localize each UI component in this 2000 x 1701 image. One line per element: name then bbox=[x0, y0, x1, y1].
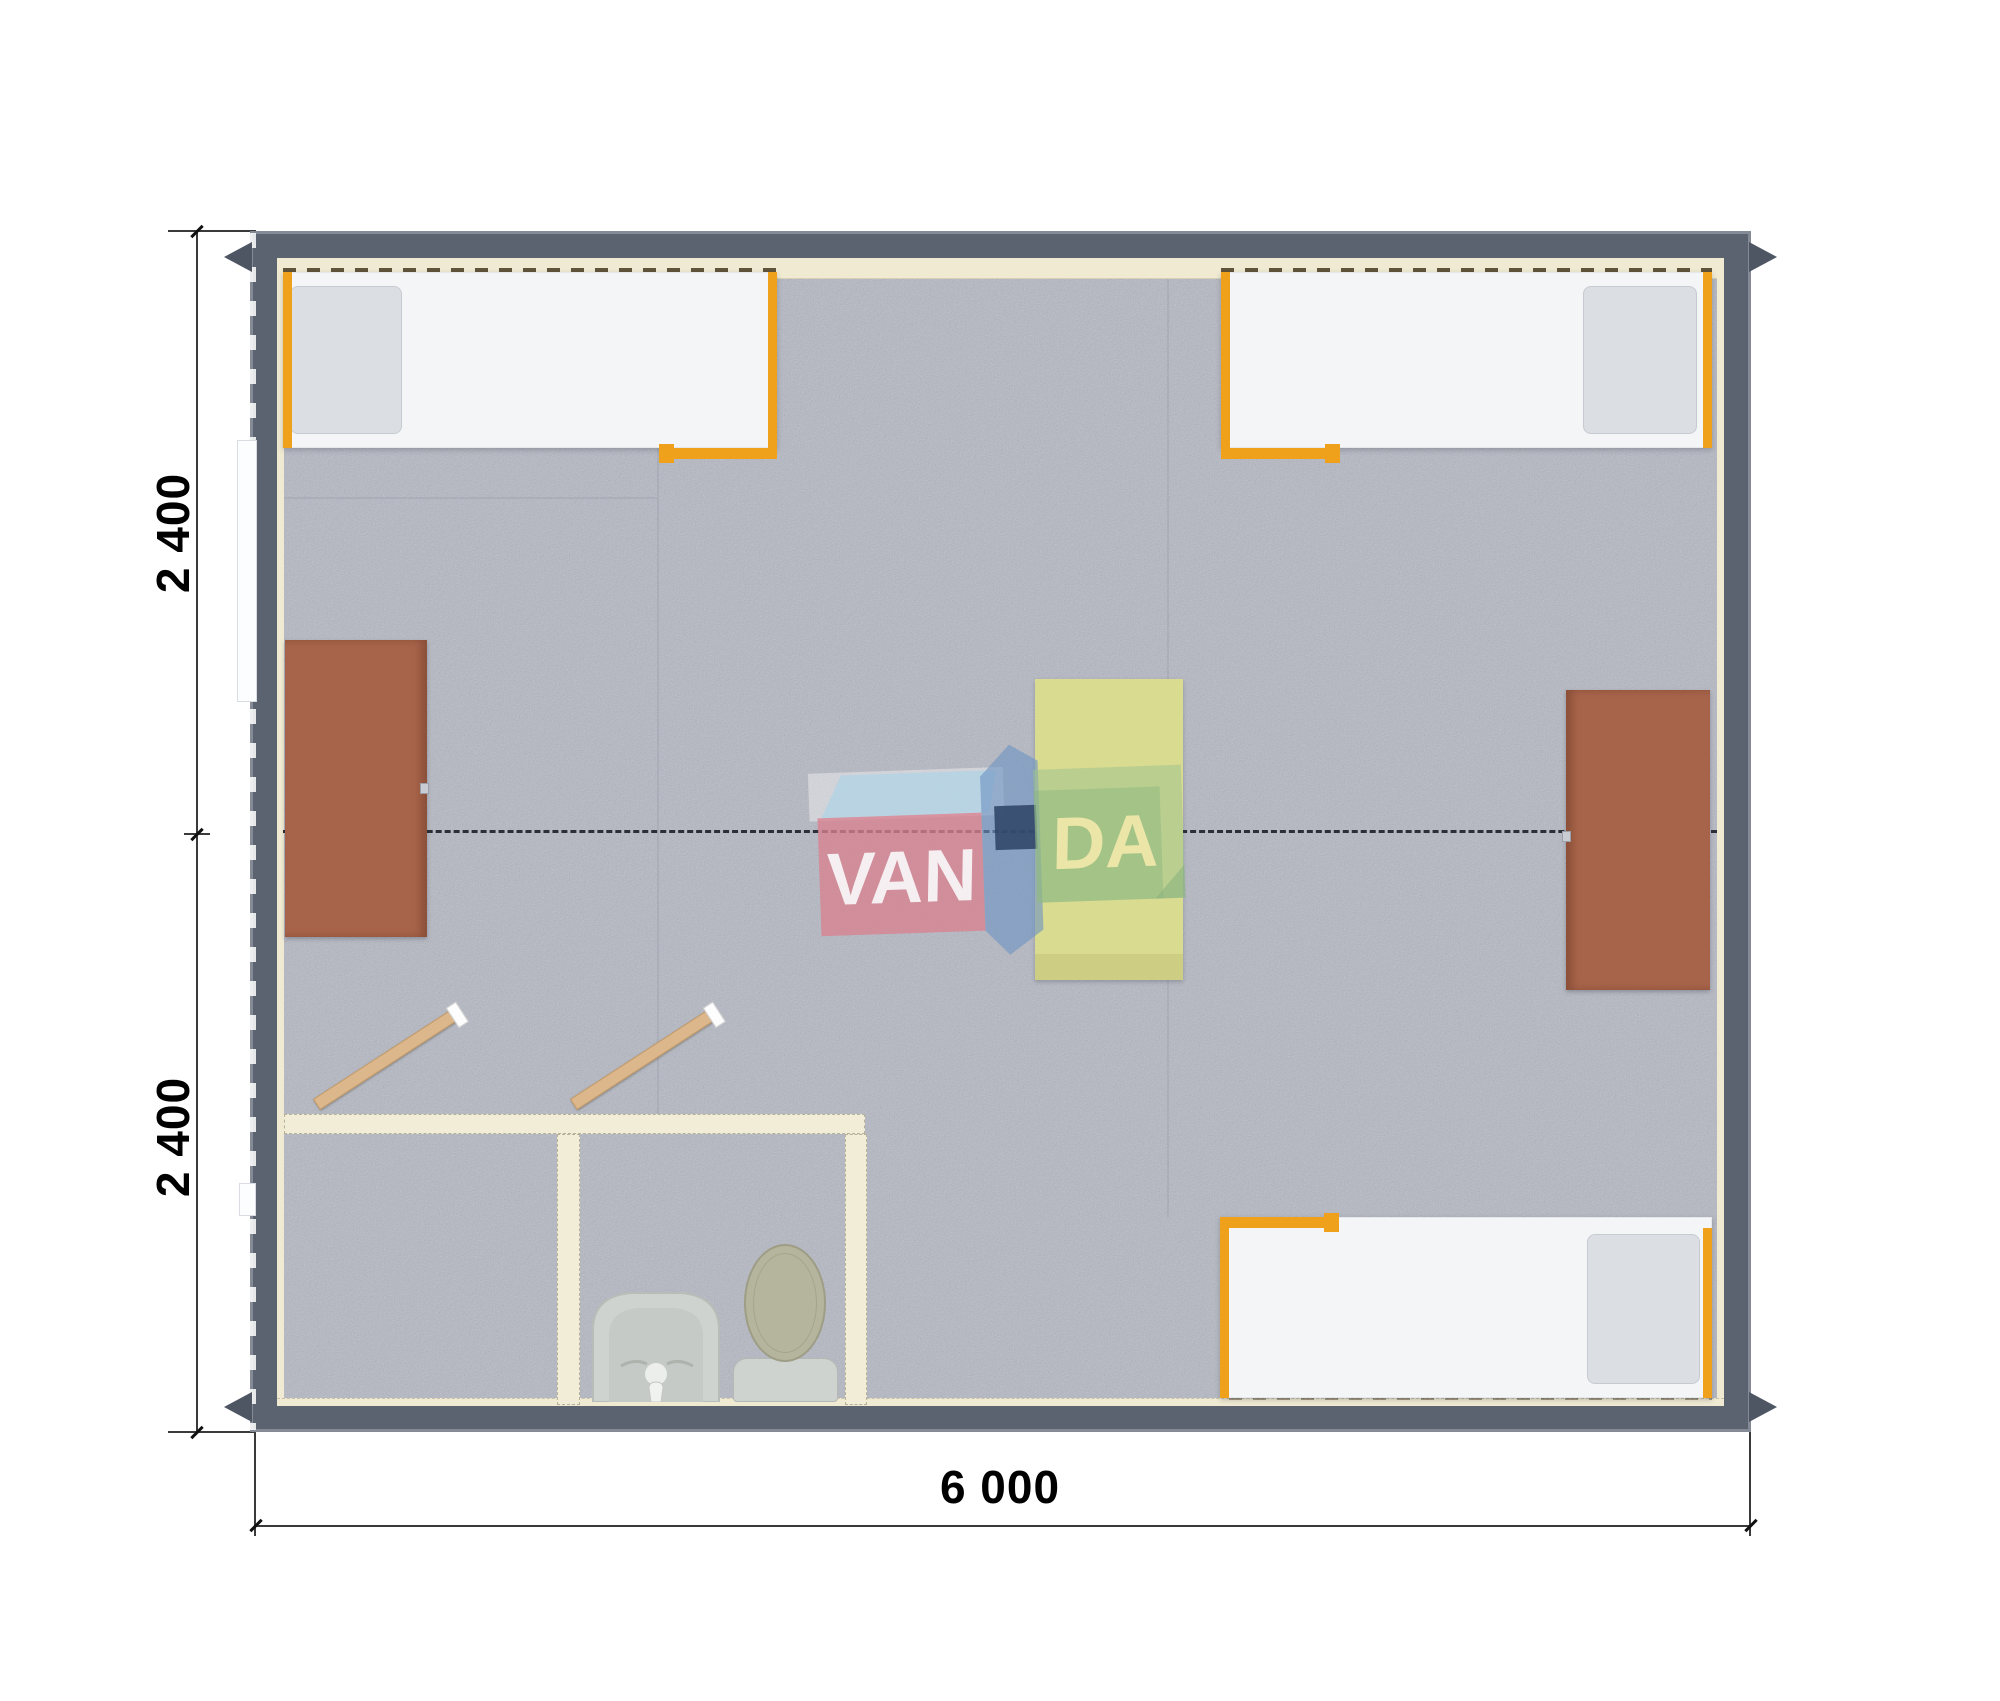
bed-frame-rail bbox=[1220, 1217, 1229, 1398]
module-axis-dashed-line bbox=[283, 830, 1717, 833]
pillow bbox=[290, 286, 402, 434]
bed-frame-rail bbox=[1221, 272, 1230, 459]
dimension-label-width: 6 000 bbox=[920, 1462, 1080, 1512]
desk-right bbox=[1566, 690, 1710, 990]
partition-wall-vertical bbox=[845, 1134, 867, 1405]
corner-clamp-icon bbox=[1747, 1392, 1777, 1422]
bed-frame-corner bbox=[1325, 444, 1340, 463]
corner-clamp-icon bbox=[1747, 242, 1777, 272]
partition-wall-vertical bbox=[557, 1134, 580, 1405]
bed-frame-rail bbox=[1703, 272, 1712, 448]
toilet-tank bbox=[733, 1358, 838, 1402]
desk-left bbox=[285, 640, 427, 937]
dimension-tick-bottom bbox=[168, 1431, 256, 1433]
desk-knob bbox=[1562, 831, 1571, 842]
dimension-line-bottom bbox=[255, 1525, 1751, 1527]
dimension-extension-line-bottom-right bbox=[1749, 1430, 1751, 1536]
window bbox=[237, 440, 257, 702]
corner-clamp-icon bbox=[224, 1392, 254, 1422]
bed-frame-rail bbox=[672, 448, 777, 459]
washbasin bbox=[583, 1284, 729, 1402]
table-center bbox=[1035, 679, 1183, 980]
dimension-tick-top bbox=[168, 230, 256, 232]
wall-panel-joint-dashes bbox=[250, 233, 256, 1430]
dimension-label-height-top: 2 400 bbox=[148, 468, 198, 598]
bed-frame-corner bbox=[659, 444, 674, 463]
bed-frame-rail bbox=[283, 272, 292, 448]
bed-frame-rail bbox=[1230, 448, 1325, 459]
pillow bbox=[1583, 286, 1697, 434]
corner-clamp-icon bbox=[224, 242, 254, 272]
pillow bbox=[1587, 1234, 1700, 1384]
entry-door-mark bbox=[239, 1183, 256, 1216]
floor-panel-seam bbox=[277, 497, 657, 499]
dimension-extension-line-bottom-left bbox=[254, 1430, 256, 1536]
toilet bbox=[744, 1244, 826, 1362]
bed-frame-rail bbox=[1703, 1228, 1712, 1398]
partition-wall-horizontal bbox=[284, 1114, 865, 1134]
bed-frame-corner bbox=[1324, 1213, 1339, 1232]
bed-frame-rail bbox=[768, 272, 777, 459]
desk-knob bbox=[420, 783, 429, 794]
wall-lining-right bbox=[1717, 278, 1724, 1398]
bed-frame-rail bbox=[1229, 1217, 1324, 1228]
floor-plan-sheet: 2 400 2 400 6 000 bbox=[0, 0, 2000, 1701]
cabin-plan: VAN DA bbox=[250, 231, 1751, 1432]
dimension-label-height-bottom: 2 400 bbox=[148, 1072, 198, 1202]
table-center-edge bbox=[1035, 954, 1183, 980]
